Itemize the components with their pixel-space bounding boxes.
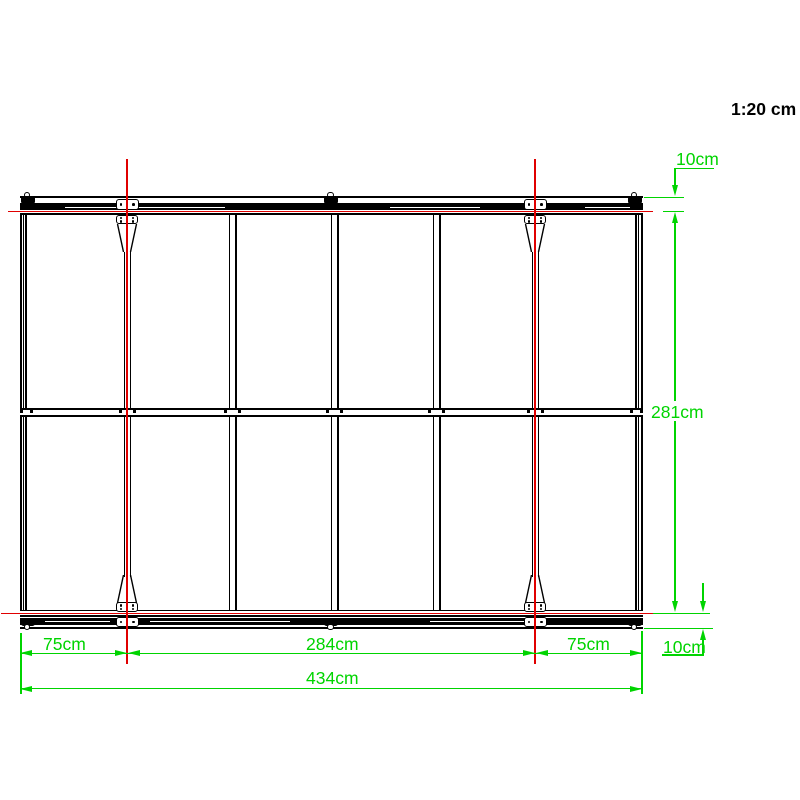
screw-dot	[428, 410, 431, 413]
clamp-bolt-icon	[631, 624, 638, 631]
drawing-canvas: 1:20 cm	[0, 0, 800, 800]
screw-dot	[20, 410, 23, 413]
dimension-leader-line	[674, 168, 714, 170]
red-centerline-horizontal-top	[8, 211, 653, 213]
dim-label-right-bay: 75cm	[567, 636, 610, 653]
dimension-line	[674, 169, 676, 186]
rail-highlight	[585, 207, 630, 208]
screw-dot	[340, 410, 343, 413]
screw-dot	[640, 410, 643, 413]
center-clamp	[324, 196, 338, 205]
screw-dot	[541, 410, 544, 413]
screw-dot	[224, 410, 227, 413]
dim-label-center-bay: 284cm	[306, 636, 359, 653]
dimension-leader-line	[662, 654, 704, 656]
dimension-arrow	[672, 601, 678, 612]
dimension-arrow	[20, 686, 32, 692]
screw-dot	[30, 410, 33, 413]
dimension-arrow	[672, 185, 678, 196]
extension-line	[644, 197, 684, 199]
rail-highlight	[390, 207, 480, 208]
screw-dot	[119, 410, 122, 413]
dim-label-frame-height: 281cm	[650, 404, 705, 421]
corner-clamp	[628, 196, 642, 205]
red-centerline-horizontal-bottom	[1, 613, 653, 615]
dimension-arrow	[20, 650, 32, 656]
screw-dot	[527, 410, 530, 413]
dim-label-top-rail-depth: 10cm	[676, 151, 719, 168]
dimension-arrow	[115, 650, 127, 656]
rail-highlight	[150, 621, 290, 622]
dimension-line	[20, 688, 642, 690]
screw-dot	[238, 410, 241, 413]
screw-dot	[326, 410, 329, 413]
middle-beam	[20, 408, 643, 417]
rail-highlight	[45, 621, 110, 622]
dimension-line	[702, 583, 704, 601]
dimension-arrow	[672, 212, 678, 223]
red-centerline-vertical-left	[126, 159, 128, 664]
dimension-arrow	[128, 650, 140, 656]
dim-label-bottom-rail-depth: 10cm	[663, 639, 706, 656]
dimension-line	[702, 640, 704, 655]
bottom-rail-inner-edge	[20, 615, 643, 617]
red-centerline-vertical-right	[534, 159, 536, 664]
corner-clamp	[21, 196, 35, 205]
scale-label: 1:20 cm	[731, 99, 796, 120]
dimension-arrow	[536, 650, 548, 656]
bottom-rail-top-edge	[20, 610, 643, 612]
extension-line	[653, 613, 710, 615]
dimension-line	[20, 653, 642, 655]
dim-label-total-width: 434cm	[306, 670, 359, 687]
dimension-arrow	[700, 629, 706, 640]
rail-highlight	[430, 621, 530, 622]
rail-highlight	[65, 207, 225, 208]
screw-dot	[630, 410, 633, 413]
clamp-bolt-icon	[24, 624, 31, 631]
dim-label-left-bay: 75cm	[43, 636, 86, 653]
screw-dot	[442, 410, 445, 413]
dimension-line	[674, 421, 676, 601]
dimension-line	[674, 223, 676, 401]
clamp-bolt-icon	[327, 624, 334, 631]
dimension-arrow	[630, 686, 642, 692]
screw-dot	[133, 410, 136, 413]
dimension-arrow	[700, 601, 706, 612]
dimension-arrow	[523, 650, 535, 656]
dimension-arrow	[630, 650, 642, 656]
top-rail-bottom-edge	[20, 213, 643, 215]
